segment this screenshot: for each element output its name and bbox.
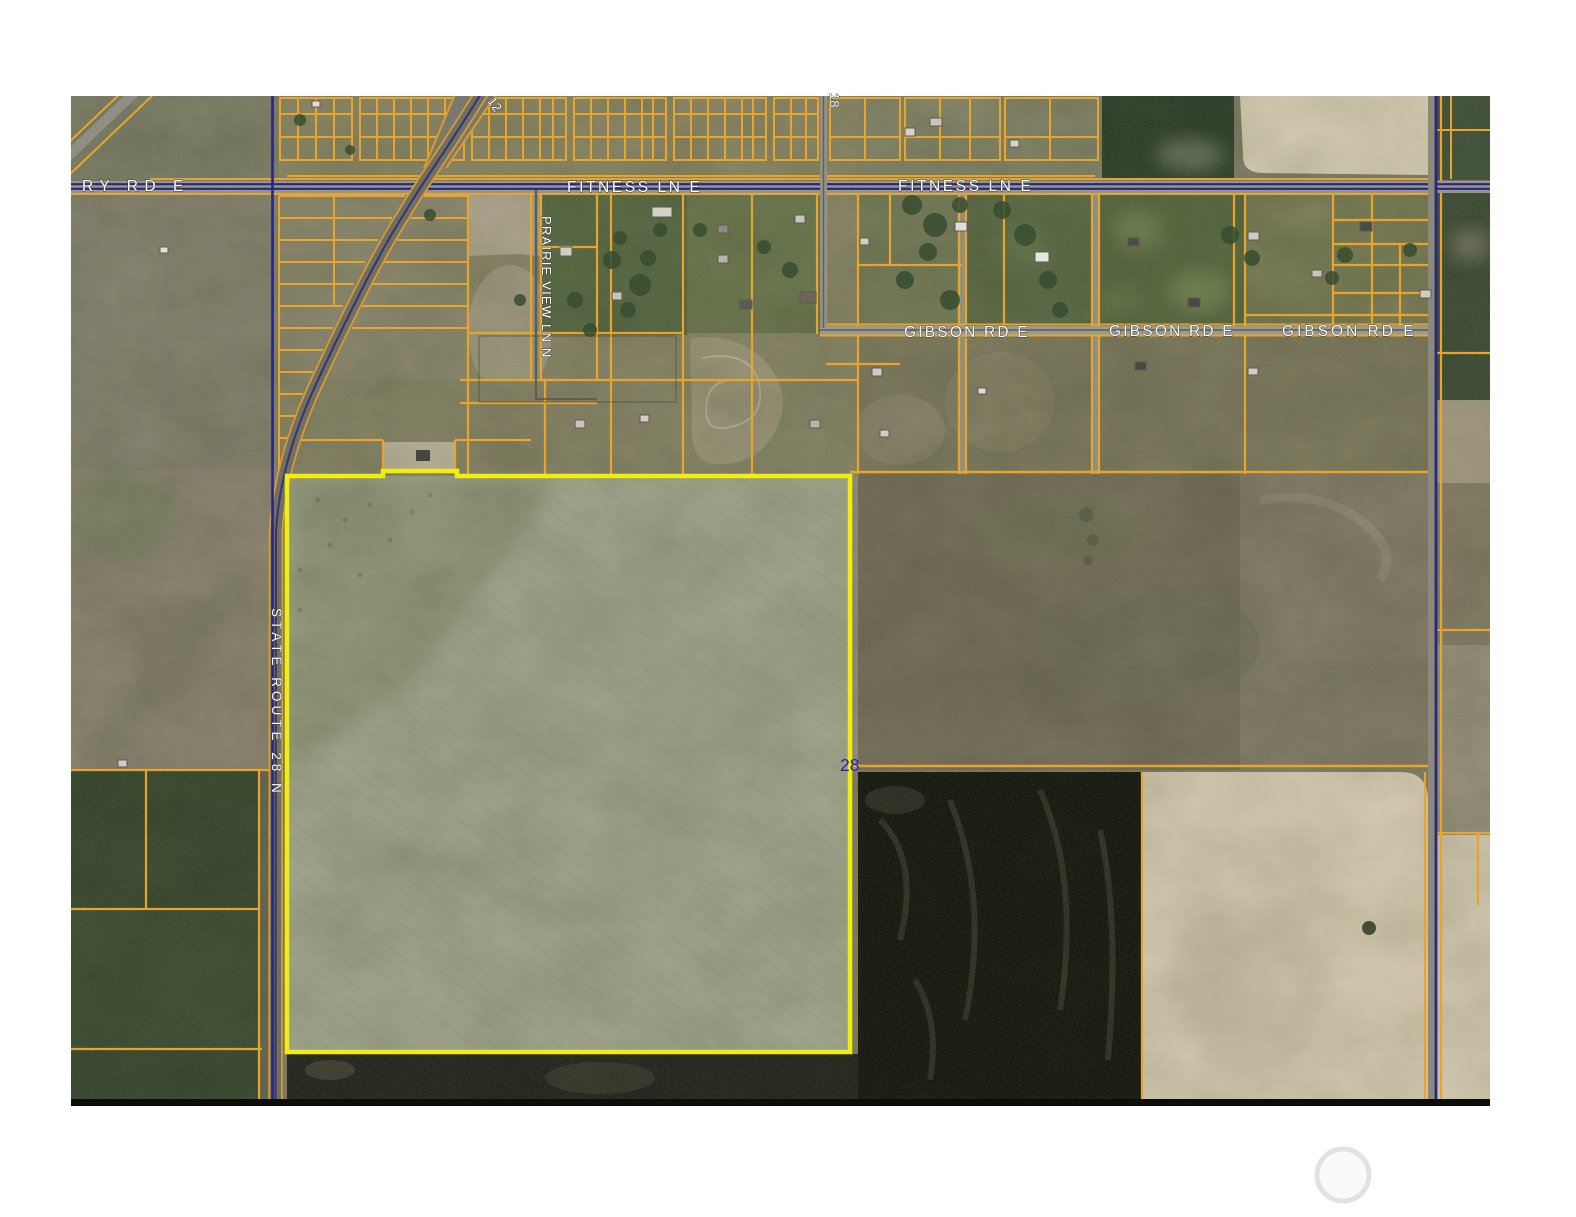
svg-text:FITNESS LN E: FITNESS LN E: [567, 179, 702, 196]
svg-text:FITNESS LN E: FITNESS LN E: [898, 178, 1033, 195]
svg-text:GIBSON RD E: GIBSON RD E: [1109, 323, 1235, 340]
svg-text:28: 28: [840, 755, 859, 775]
svg-text:18: 18: [827, 93, 842, 107]
svg-text:GIBSON RD E: GIBSON RD E: [904, 324, 1030, 341]
svg-text:STATE ROUTE 28 N: STATE ROUTE 28 N: [269, 608, 284, 797]
svg-text:GIBSON RD E: GIBSON RD E: [1282, 323, 1417, 340]
svg-text:PRAIRIE VIEW LN N: PRAIRIE VIEW LN N: [539, 216, 554, 358]
svg-text:RY RD E: RY RD E: [82, 178, 190, 195]
